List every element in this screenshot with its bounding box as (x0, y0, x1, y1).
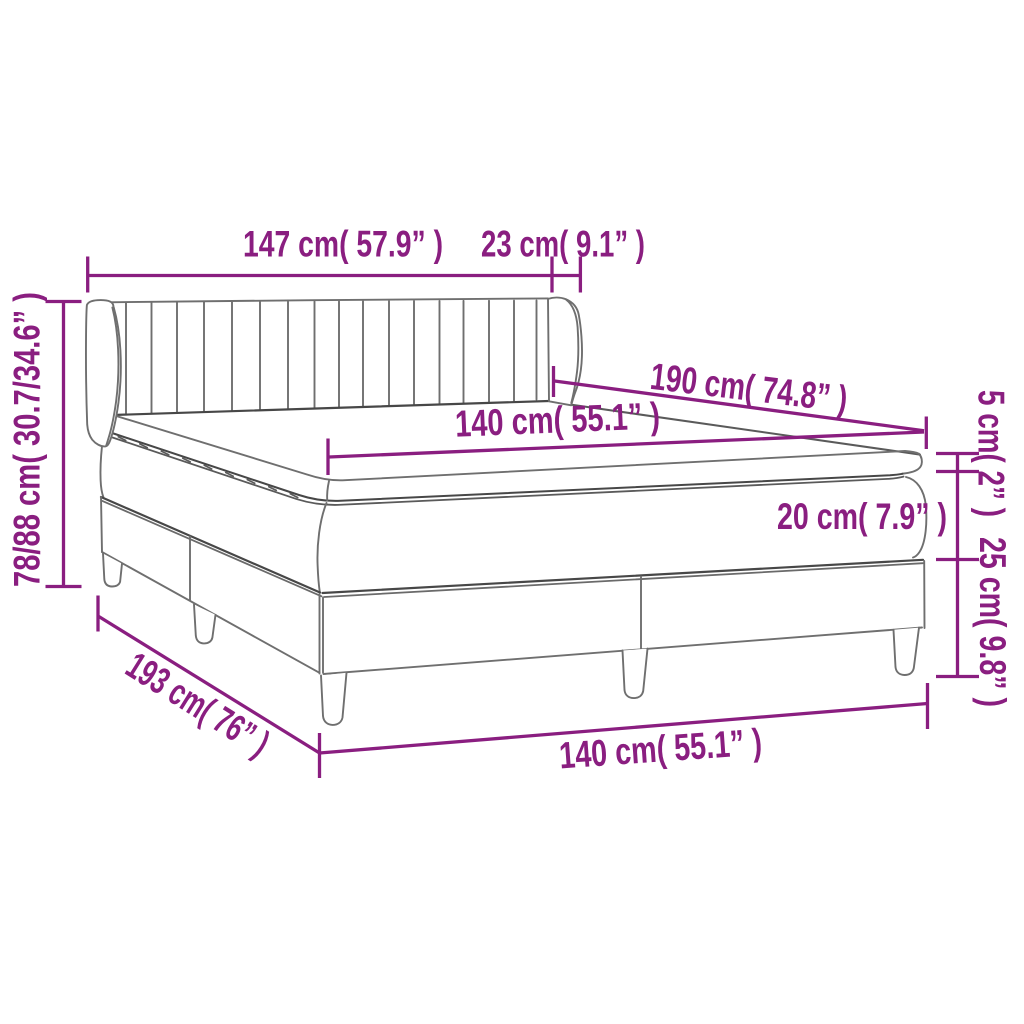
svg-text:25 cm( 9.8” ): 25 cm( 9.8” ) (972, 537, 1014, 707)
svg-text:20 cm( 7.9” ): 20 cm( 7.9” ) (777, 495, 947, 537)
svg-text:5 cm( 2” ): 5 cm( 2” ) (971, 390, 1013, 517)
svg-text:78/88 cm( 30.7/34.6” ): 78/88 cm( 30.7/34.6” ) (6, 292, 48, 587)
svg-text:140 cm( 55.1” ): 140 cm( 55.1” ) (454, 394, 661, 445)
svg-text:147 cm( 57.9” ): 147 cm( 57.9” ) (243, 223, 443, 265)
svg-text:23 cm( 9.1” ): 23 cm( 9.1” ) (481, 223, 645, 265)
